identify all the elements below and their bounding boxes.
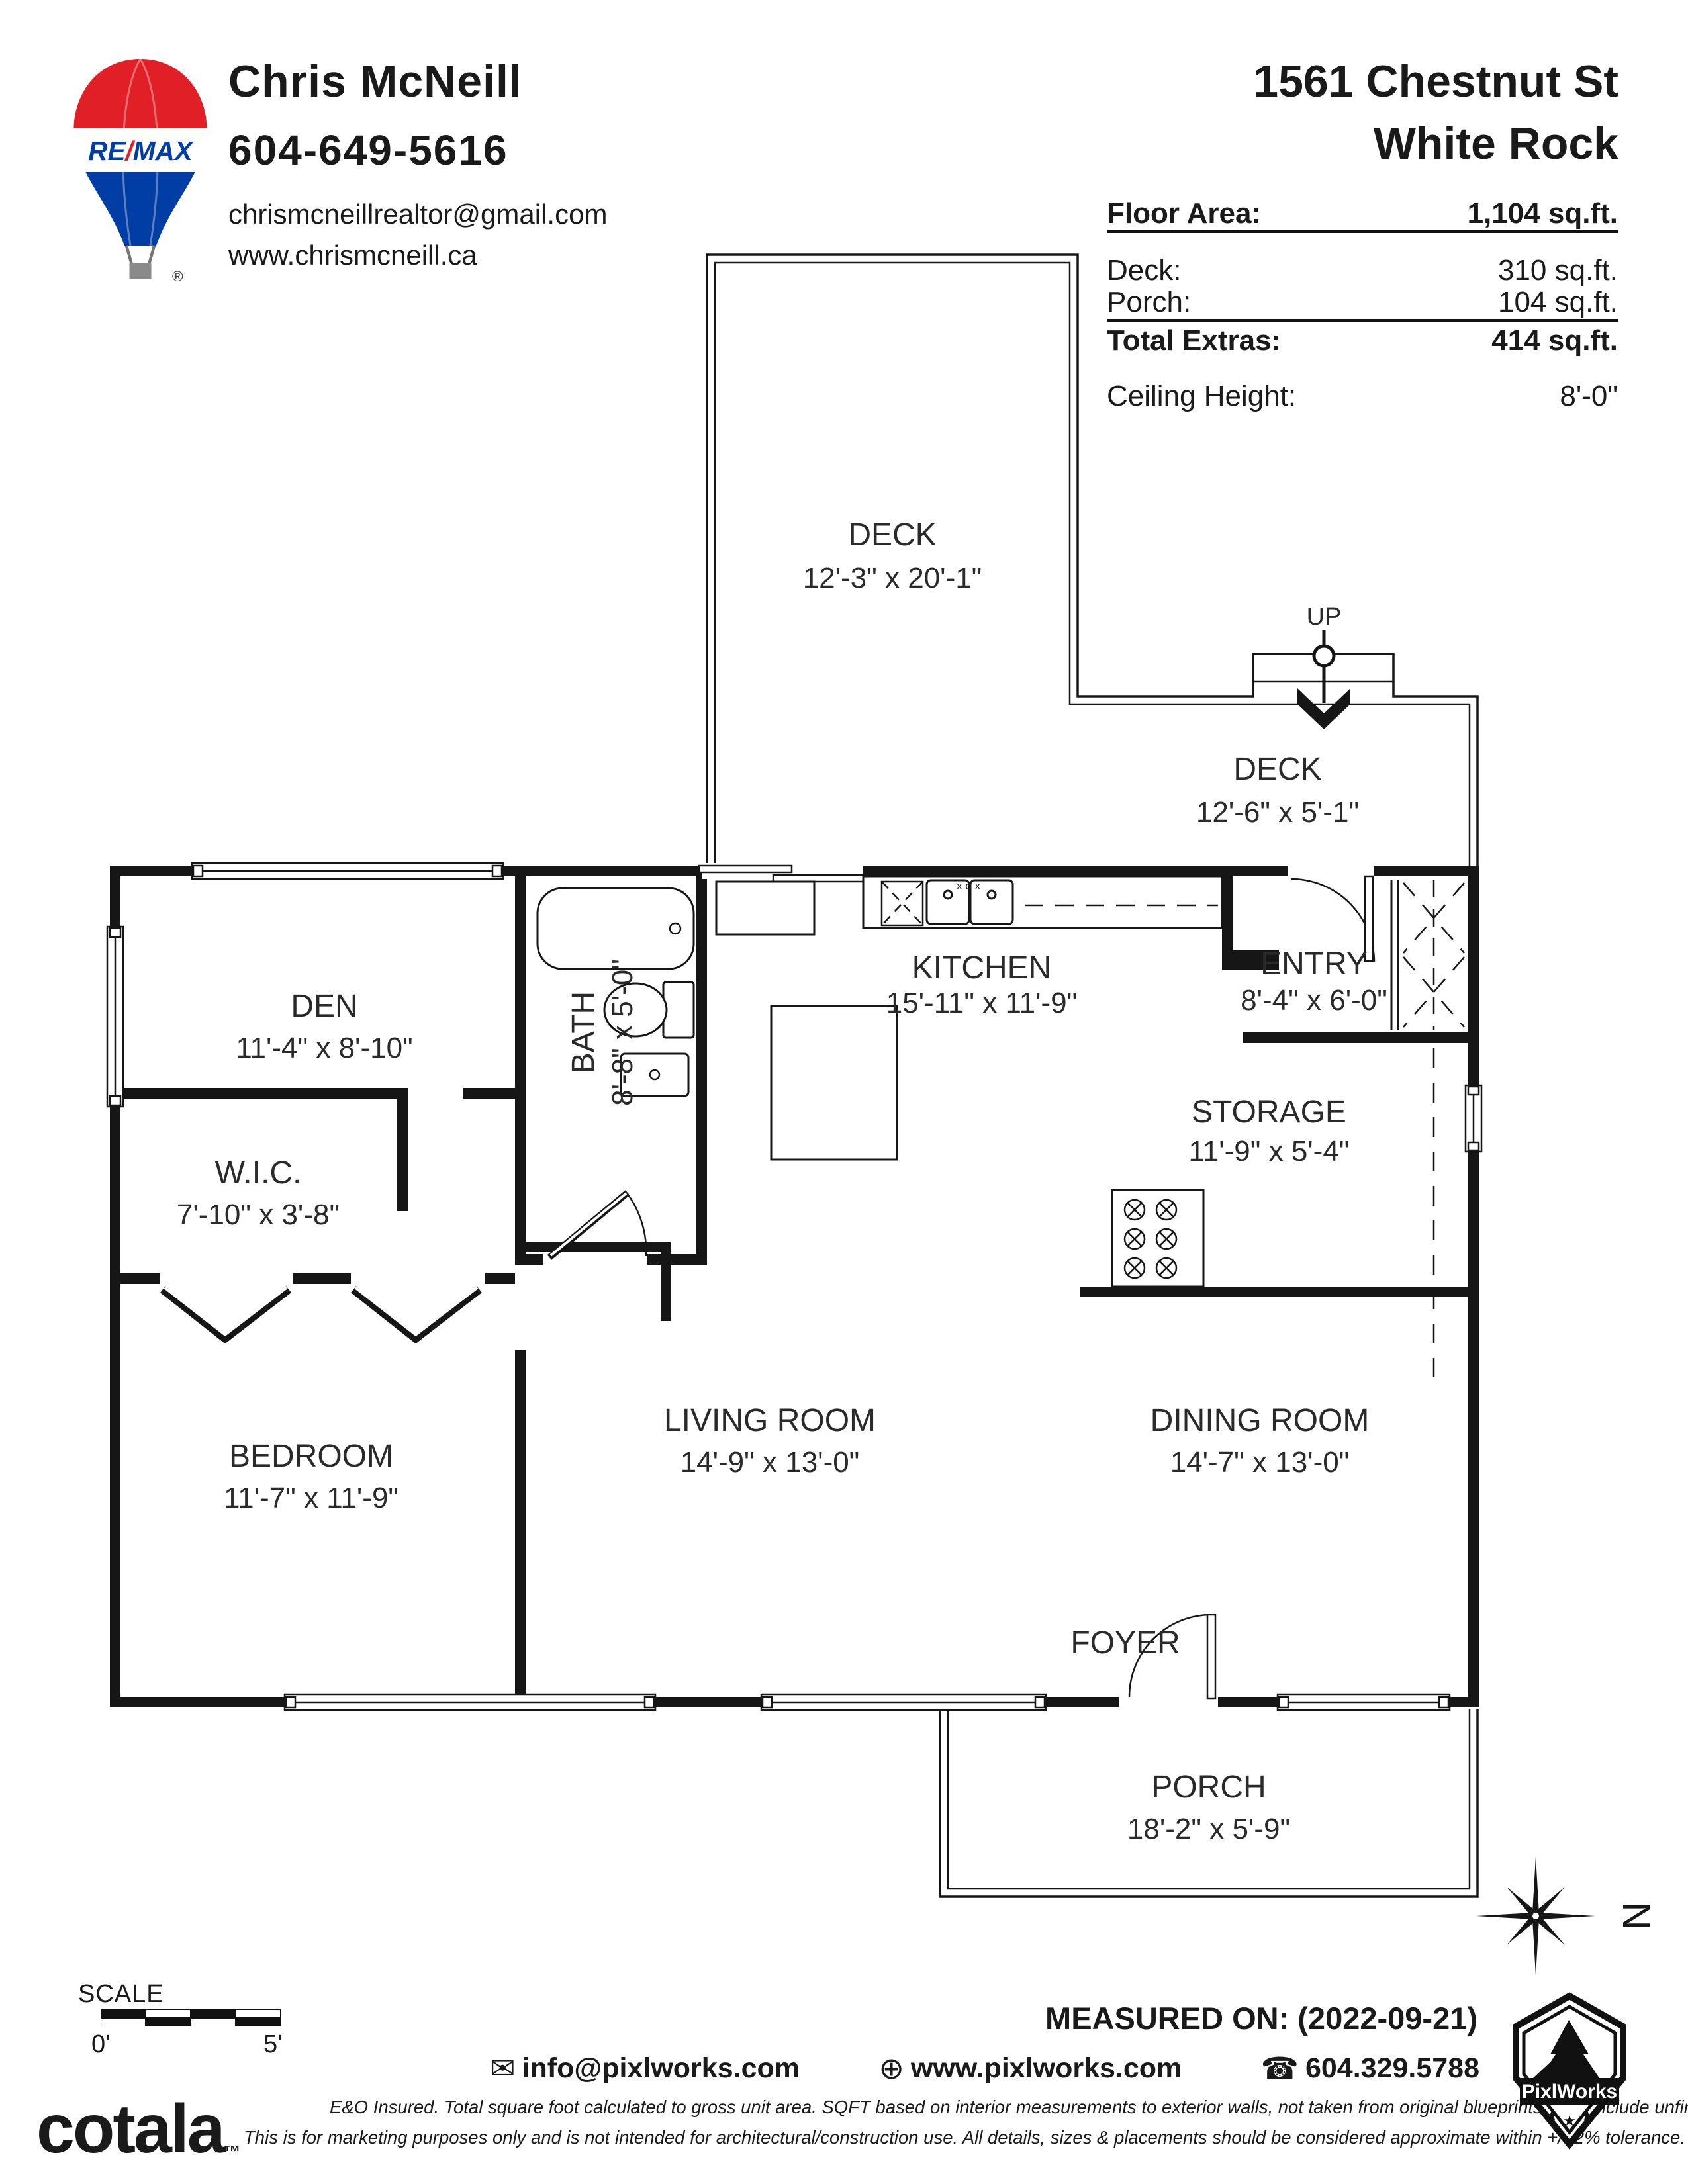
dims-deck-lower: 12'-6" x 5'-1" [1196,796,1359,829]
bath-sink-drain [650,1070,659,1079]
window-living [761,1694,1046,1710]
window-den-left [107,927,123,1107]
scale-zero: 0' [91,2030,110,2059]
dims-storage: 11'-9" x 5'-4" [1189,1135,1350,1167]
window-bedroom [285,1694,655,1710]
svg-text:★: ★ [1563,2113,1576,2129]
range-box [882,882,923,925]
dims-dining: 14'-7" x 13'-0" [1170,1446,1350,1479]
dims-bedroom: 11'-7" x 11'-9" [224,1482,399,1514]
stair-arrow-circle [1314,646,1334,666]
kitchen-fixtures [716,876,1222,1287]
contact-email: ✉ info@pixlworks.com [490,2050,800,2086]
dims-den: 11'-4" x 8'-10" [236,1032,412,1064]
label-up: UP [1307,603,1342,631]
dims-deck-upper: 12'-3" x 20'-1" [803,562,982,594]
floorplan-page: RE/MAX ® Chris McNeill 604-649-5616 chri… [0,0,1688,2184]
scale-bar [101,2009,281,2026]
contact-phone: ☎ 604.329.5788 [1261,2050,1479,2086]
sink-wall-marks: x o x [957,880,980,892]
window-den-top [192,863,503,879]
label-entry: ENTRY [1260,946,1368,981]
cotala-tm: ™ [224,2142,239,2161]
label-storage: STORAGE [1192,1095,1346,1130]
label-foyer: FOYER [1070,1625,1180,1661]
dims-kitchen: 15'-11" x 11'-9" [886,987,1078,1019]
stove-column [1112,1190,1203,1287]
bifold-closet-doors [163,1287,479,1338]
kitchen-island [771,1006,897,1160]
label-bath: BATH [566,991,601,1073]
dims-wic: 7'-10" x 3'-8" [177,1199,340,1231]
label-kitchen: KITCHEN [912,950,1052,985]
entry-closet [1391,880,1464,1030]
compass-north-label: N [1615,1902,1658,1930]
label-deck-lower: DECK [1233,752,1321,787]
room-labels: DECK 12'-3" x 20'-1" DECK 12'-6" x 5'-1"… [177,518,1387,1845]
compass-rose: N [1476,1856,1658,1976]
label-porch: PORCH [1151,1770,1266,1805]
envelope-icon: ✉ [490,2050,516,2086]
cotala-logo: cotala™ [36,2090,239,2169]
pixlworks-wordmark: PixlWorks [1522,2081,1618,2103]
label-living: LIVING ROOM [664,1403,876,1438]
window-dining [1278,1694,1450,1710]
dims-living: 14'-9" x 13'-0" [680,1446,860,1479]
floorplan-drawing: DECK 12'-3" x 20'-1" DECK 12'-6" x 5'-1"… [0,0,1688,2184]
svg-text:★: ★ [1545,2107,1558,2124]
label-deck-upper: DECK [848,518,936,553]
label-dining: DINING ROOM [1150,1403,1370,1438]
scale-five: 5' [263,2030,282,2059]
label-wic: W.I.C. [215,1156,302,1191]
svg-text:★: ★ [1581,2107,1594,2124]
disclaimer-line-2: This is for marketing purposes only and … [244,2127,1481,2148]
pixlworks-logo: PixlWorks ★★★ [1493,1991,1646,2150]
scale-label: SCALE [78,1980,164,2009]
tub-drain [670,923,680,934]
globe-icon: ⊕ [878,2050,904,2086]
contact-website: ⊕ www.pixlworks.com [878,2050,1182,2086]
stair-up-arrow [1297,630,1350,729]
label-bedroom: BEDROOM [229,1439,393,1474]
kitchen-cabinet-return [716,882,814,934]
sliding-door-kitchen [699,863,866,882]
label-den: DEN [291,989,357,1024]
measured-on-date: MEASURED ON: (2022-09-21) [861,2000,1477,2036]
dims-bath: 8'-8" x 5'-0" [606,959,639,1106]
toilet-tank [663,982,694,1038]
dims-entry: 8'-4" x 6'-0" [1241,984,1387,1017]
disclaimer-line-1: E&O Insured. Total square foot calculate… [330,2097,1481,2118]
deck-outline [707,255,1477,867]
window-storage-right [1466,1085,1481,1152]
phone-icon: ☎ [1261,2050,1299,2086]
dims-porch: 18'-2" x 5'-9" [1127,1813,1290,1845]
pixlworks-contact-row: ✉ info@pixlworks.com ⊕ www.pixlworks.com… [490,2050,1479,2086]
